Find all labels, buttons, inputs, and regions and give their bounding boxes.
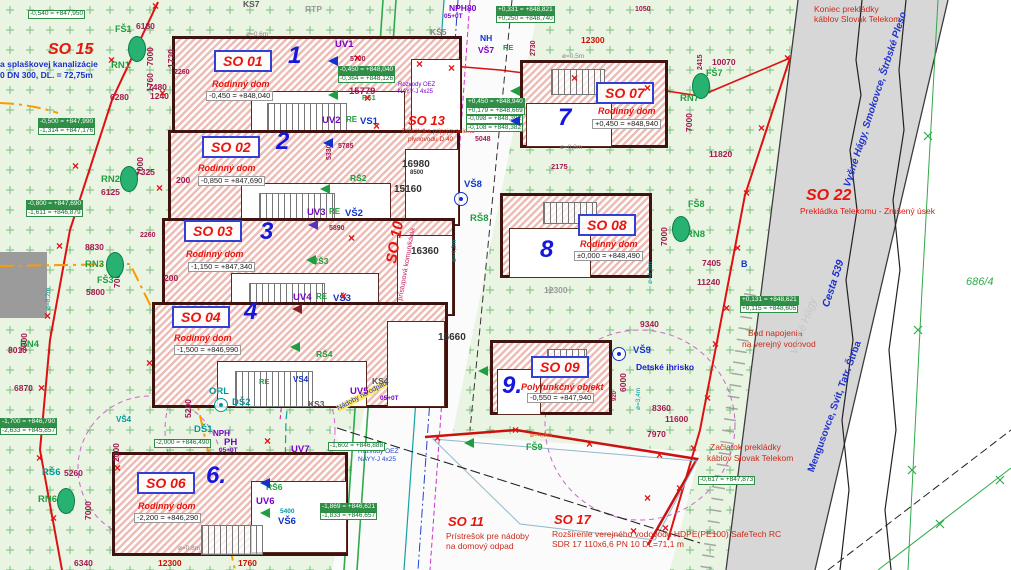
building-elevation-so-09: -0,550 = +847,940 <box>527 393 594 403</box>
well-icon-center <box>219 403 223 407</box>
dimension: 16660 <box>438 333 466 343</box>
boundary-x-mark: × <box>146 357 153 369</box>
dimension: 11820 <box>709 150 732 159</box>
arrow-icon <box>292 304 302 314</box>
dimension: 5260 <box>64 469 83 478</box>
dimension: 920 <box>612 391 618 401</box>
boundary-x-mark: × <box>644 492 651 504</box>
building-number-so-01: 1 <box>288 44 301 68</box>
dimension: 1050 <box>635 6 651 13</box>
building-label-so-03: SO 03 <box>184 220 242 242</box>
tree-icon <box>672 216 690 242</box>
building-number-so-04: 4 <box>244 300 257 324</box>
utility-point-05+0t: 05+0T <box>380 396 399 403</box>
utility-point-vš4: VŠ4 <box>116 416 131 424</box>
annotation-note: Prekládka Telekomu - Zrušený úsek <box>800 207 935 216</box>
arrow-icon <box>260 478 270 488</box>
arrow-icon <box>290 342 300 352</box>
dimension: 11240 <box>697 278 720 287</box>
annotation-note: Prekládka pripojovacieho <box>402 129 475 136</box>
elevation-tag: -0,500 = +847,990 <box>38 118 95 127</box>
dimension: 200 <box>164 274 178 283</box>
boundary-x-mark: × <box>434 432 441 444</box>
elevation-tag: -0,540 = +847,950 <box>28 10 85 19</box>
elevation-tag: +0,450 = +848,940 <box>466 98 525 107</box>
elevation-tag: +0,179 = +848,669 <box>466 107 525 116</box>
annotation-note: Prístrešok pre nádoby <box>446 532 529 541</box>
arrow-icon <box>323 138 333 148</box>
pipe-diameter-label: ø=0,5m <box>562 54 584 61</box>
building-label-so-02: SO 02 <box>202 136 260 158</box>
annotation-note: Rozvody OEZ <box>398 82 435 88</box>
well-icon-center <box>617 352 621 356</box>
dimension: 2730 <box>530 40 537 56</box>
area-label-so-11: SO 11 <box>448 515 484 528</box>
elevation-tag: -1,700 = +846,790 <box>0 418 57 427</box>
utility-point-rš8: RŠ8 <box>470 214 488 224</box>
pipe-diameter-label: ø=8,2m <box>46 288 53 310</box>
dimension: 5785 <box>338 143 354 150</box>
pipe-diameter-label: ø=0,8m <box>178 546 200 553</box>
tree-icon <box>57 488 75 514</box>
pipe-diameter-label: ø=0,8m <box>560 145 582 152</box>
pipe-diameter-label: ø=3,4m <box>636 388 643 410</box>
utility-point-uv5: UV5 <box>350 387 368 397</box>
dimension: 2000 <box>112 443 121 462</box>
annotation-note: NAYY-J 4x25 <box>398 89 433 95</box>
well-icon <box>454 192 468 206</box>
utility-point-rš6: RŠ6 <box>42 468 60 478</box>
utility-point-nph80: NPH80 <box>449 4 476 13</box>
utility-point-5400: 5400 <box>280 509 294 516</box>
annotation-note: a splaškovej kanalizácie <box>0 60 98 69</box>
boundary-x-mark: × <box>690 442 697 454</box>
boundary-x-mark: × <box>662 522 669 534</box>
utility-point-fš1: FŠ1 <box>115 25 132 34</box>
dimension: 11600 <box>665 415 688 424</box>
elevation-tag: -0,450 = +848,040 <box>338 66 395 75</box>
pipe-diameter-label: ø=4,9m <box>648 262 655 284</box>
boundary-x-mark: × <box>159 87 166 99</box>
building-elevation-so-07: +0,450 = +848,940 <box>592 119 661 129</box>
boundary-x-mark: × <box>56 240 63 252</box>
arrow-icon <box>464 438 474 448</box>
dimension: 1760 <box>238 559 257 568</box>
dimension: 5890 <box>329 225 345 232</box>
boundary-x-mark: × <box>156 182 163 194</box>
site-plan: SO 011Rodinný dom-0,450 = +848,040SO 022… <box>0 0 1011 570</box>
pipe-diameter-label: ø=0,6m <box>246 32 268 39</box>
pipe-diameter-label: ø=4,2m <box>452 240 459 262</box>
boundary-x-mark: × <box>36 452 43 464</box>
area-label-so-22: SO 22 <box>806 188 851 204</box>
boundary-x-mark: × <box>676 482 683 494</box>
utility-point-rn3: RN3 <box>85 260 104 270</box>
well-icon <box>612 347 626 361</box>
utility-point-vš7: VŠ7 <box>478 46 494 55</box>
elevation-tag: -1,869 = +846,621 <box>320 503 377 512</box>
utility-point-vš9: VŠ9 <box>633 346 651 356</box>
building-elevation-so-02: -0,850 = +847,690 <box>198 176 265 186</box>
utility-point-uv4: UV4 <box>293 293 311 303</box>
annotation-note: káblov Slovak Telekom <box>814 15 900 24</box>
boundary-x-mark: × <box>656 449 663 461</box>
utility-point-fš9: FŠ9 <box>526 443 543 452</box>
building-type-so-09: Polyfunkčný objekt <box>521 383 604 392</box>
utility-point-re: RE <box>329 208 340 216</box>
arrow-icon <box>510 86 520 96</box>
dimension: 15779 <box>349 87 375 97</box>
boundary-x-mark: × <box>416 58 423 70</box>
boundary-x-mark: × <box>50 512 57 524</box>
building-label-so-08: SO 08 <box>578 214 636 236</box>
boundary-x-mark: × <box>712 338 719 350</box>
annotation-note: 0 DN 300, DL. = 72,75m <box>0 71 93 80</box>
utility-point-re: RE <box>503 44 513 52</box>
arrow-icon <box>320 184 330 194</box>
annotation-note: káblov Slovak Telekom <box>707 454 793 463</box>
utility-point-re: RE <box>346 116 357 124</box>
area-label-so-17: SO 17 <box>554 513 591 526</box>
dimension: 8500 <box>410 170 423 176</box>
utility-point-05+0t: 05+0T <box>219 448 238 455</box>
utility-point-rn2: RN2 <box>101 175 120 185</box>
building-elevation-so-01: -0,450 = +848,040 <box>206 91 273 101</box>
building-label-so-01: SO 01 <box>214 50 272 72</box>
arrow-icon <box>308 220 318 230</box>
boundary-x-mark: × <box>512 424 519 436</box>
area-label-so-13: SO 13 <box>408 114 445 127</box>
utility-point-kš5: KŠ5 <box>430 28 447 37</box>
well-icon <box>214 398 228 412</box>
boundary-x-mark: × <box>784 52 791 64</box>
boundary-x-mark: × <box>723 302 730 314</box>
arrow-icon <box>328 90 338 100</box>
elevation-tag: +0,131 = +848,621 <box>740 296 799 305</box>
boundary-x-mark: × <box>743 187 750 199</box>
building-label-so-09: SO 09 <box>531 356 589 378</box>
boundary-x-mark: × <box>644 82 651 94</box>
building-label-so-06: SO 06 <box>137 472 195 494</box>
well-icon-center <box>459 197 463 201</box>
building-so-07 <box>520 60 668 148</box>
elevation-tag: -2,633 = +845,857 <box>0 427 57 436</box>
dimension: 1730 <box>167 49 176 68</box>
boundary-x-mark: × <box>734 242 741 254</box>
elevation-tag: +0,250 = +848,740 <box>496 15 555 24</box>
building-number-so-07: 7 <box>558 106 571 130</box>
elevation-tag: -0,617 = +847,873 <box>698 476 755 485</box>
dimension: 5800 <box>86 288 105 297</box>
building-number-so-09: 9. <box>502 374 522 398</box>
dimension: 7405 <box>702 259 721 268</box>
boundary-x-mark: × <box>586 438 593 450</box>
tree-icon <box>120 166 138 192</box>
building-elevation-so-06: -2,200 = +846,290 <box>134 513 201 523</box>
utility-point-vš8: VŠ8 <box>464 180 482 190</box>
utility-point-rn6: RN6 <box>38 495 57 505</box>
utility-point-uv2: UV2 <box>322 116 340 126</box>
utility-point-ks4: KS4 <box>372 377 389 386</box>
utility-point-nh: NH <box>480 34 492 43</box>
utility-point-05+0t: 05+0T <box>444 14 463 21</box>
building-elevation-so-04: -1,500 = +846,990 <box>174 345 241 355</box>
arrow-icon <box>510 116 520 126</box>
annotation-layer: SO 011Rodinný dom-0,450 = +848,040SO 022… <box>0 0 1011 570</box>
dimension: 6280 <box>110 93 129 102</box>
utility-point-re: RE <box>259 378 269 386</box>
dimension: 8360 <box>652 404 671 413</box>
building-label-so-04: SO 04 <box>172 306 230 328</box>
utility-point-b: B <box>741 260 748 269</box>
building-number-so-03: 3 <box>260 220 273 244</box>
arrow-icon <box>260 508 270 518</box>
dimension: 9340 <box>640 320 659 329</box>
dimension: 5048 <box>475 136 491 143</box>
dimension: 2175 <box>551 163 568 171</box>
arrow-icon <box>478 366 488 376</box>
elevation-tag: -2,000 = +846,490 <box>154 439 211 448</box>
annotation-note: NAYY-J 4x25 <box>358 457 396 464</box>
dimension: 6180 <box>136 22 155 31</box>
building-number-so-08: 8 <box>540 238 553 262</box>
boundary-x-mark: × <box>114 462 121 474</box>
dimension: 16980 <box>402 160 430 170</box>
building-elevation-so-08: ±0,000 = +848,490 <box>574 251 643 261</box>
annotation-note: SDR 17 110x6,6 PN 10 DL=71,1 m <box>552 540 684 549</box>
dimension: 2260 <box>140 232 156 239</box>
dimension: 2415 <box>697 54 704 70</box>
dimension: 12300 <box>581 36 605 45</box>
boundary-x-mark: × <box>373 120 380 132</box>
annotation-note: Detské ihrisko <box>636 363 694 372</box>
annotation-note: plynovodu D 40 <box>408 137 453 144</box>
building-type-so-03: Rodinný dom <box>186 250 244 259</box>
elevation-tag: -1,833 = +846,657 <box>320 512 377 521</box>
dimension: 12300 <box>158 559 182 568</box>
boundary-x-mark: × <box>44 310 51 322</box>
boundary-x-mark: × <box>364 92 371 104</box>
boundary-x-mark: × <box>348 232 355 244</box>
building-type-so-04: Rodinný dom <box>174 334 232 343</box>
boundary-x-mark: × <box>630 525 637 537</box>
boundary-x-mark: × <box>108 54 115 66</box>
annotation-note: Koniec prekládky <box>814 5 879 14</box>
utility-point-orl: ORL <box>209 387 229 397</box>
building-type-so-02: Rodinný dom <box>198 164 256 173</box>
utility-point-uv7: UV7 <box>291 445 309 455</box>
dimension: 5200 <box>184 399 193 418</box>
boundary-x-mark: × <box>340 290 347 302</box>
dimension: 200 <box>176 176 190 185</box>
utility-point-fš7: FŠ7 <box>706 69 723 78</box>
dimension: 7970 <box>647 430 666 439</box>
building-type-so-06: Rodinný dom <box>138 502 196 511</box>
utility-point-dš1: DŠ1 <box>194 425 212 435</box>
dimension: 2260 <box>174 69 190 76</box>
utility-point-uv6: UV6 <box>256 497 274 507</box>
utility-point-rš2: RŠ2 <box>350 174 367 183</box>
building-number-so-06: 6. <box>206 464 226 488</box>
boundary-x-mark: × <box>571 72 578 84</box>
area-label-so-15: SO 15 <box>48 42 93 58</box>
utility-point-ks7: KS7 <box>243 0 260 9</box>
dimension: 15160 <box>394 185 422 195</box>
tree-icon <box>692 73 710 99</box>
boundary-x-mark: × <box>152 0 159 12</box>
boundary-x-mark: × <box>758 122 765 134</box>
stair-icon <box>201 525 263 555</box>
utility-point-vs4: VS4 <box>293 376 308 384</box>
elevation-tag: -0,364 = +848,126 <box>338 75 395 84</box>
dimension: 7000 <box>20 333 29 352</box>
elevation-tag: -1,602 = +846,888 <box>328 442 385 451</box>
building-type-so-01: Rodinný dom <box>212 80 270 89</box>
pipe-diameter-label: ø=4,0m <box>530 433 552 440</box>
annotation-note: na domový odpad <box>446 542 514 551</box>
elevation-tag: -1,314 = +847,176 <box>38 127 95 136</box>
utility-point-fš8: FŠ8 <box>688 200 705 209</box>
dimension: 12300 <box>544 286 568 295</box>
dimension: 7000 <box>685 113 694 132</box>
building-type-so-07: Rodinný dom <box>598 107 656 116</box>
building-number-so-02: 2 <box>276 130 289 154</box>
boundary-x-mark: × <box>704 392 711 404</box>
utility-point-dš2: DŠ2 <box>232 398 250 408</box>
tree-icon <box>106 252 124 278</box>
boundary-x-mark: × <box>354 52 361 64</box>
elevation-tag: -1,611 = +846,879 <box>26 209 83 218</box>
dimension: 6340 <box>74 559 93 568</box>
utility-point-rš4: RŠ4 <box>316 350 333 359</box>
utility-point-rtp: RTP <box>305 5 322 14</box>
arrow-icon <box>306 255 316 265</box>
dimension: 6125 <box>101 188 120 197</box>
boundary-x-mark: × <box>38 382 45 394</box>
dimension: 8830 <box>85 243 104 252</box>
arrow-icon <box>328 56 338 66</box>
utility-point-ks3: KS3 <box>308 400 325 409</box>
utility-point-re: RE <box>316 293 327 301</box>
utility-point-vš6: VŠ6 <box>278 517 296 527</box>
elevation-tag: +0,331 = +848,821 <box>496 6 555 15</box>
elevation-tag: +0,115 = +848,605 <box>740 305 798 314</box>
boundary-x-mark: × <box>264 435 271 447</box>
utility-point-uv1: UV1 <box>335 40 353 50</box>
annotation-note: Začiatok prekládky <box>710 443 781 452</box>
boundary-x-mark: × <box>448 62 455 74</box>
elevation-tag: -0,800 = +847,690 <box>26 200 83 209</box>
dimension: 7000 <box>660 227 669 246</box>
building-elevation-so-03: -1,150 = +847,340 <box>188 262 255 272</box>
boundary-x-mark: × <box>72 160 79 172</box>
dimension: 6870 <box>14 384 33 393</box>
utility-point-uv3: UV3 <box>307 208 325 218</box>
dimension: 7000 <box>146 47 155 66</box>
dimension: 7000 <box>84 501 93 520</box>
dimension: 10070 <box>712 58 736 67</box>
dimension: 16360 <box>411 247 439 257</box>
parcel-number: 686/4 <box>966 276 994 288</box>
tree-icon <box>128 36 146 62</box>
dimension: 6000 <box>619 373 628 392</box>
building-type-so-08: Rodinný dom <box>580 240 638 249</box>
utility-point-vš2: VŠ2 <box>345 209 363 219</box>
